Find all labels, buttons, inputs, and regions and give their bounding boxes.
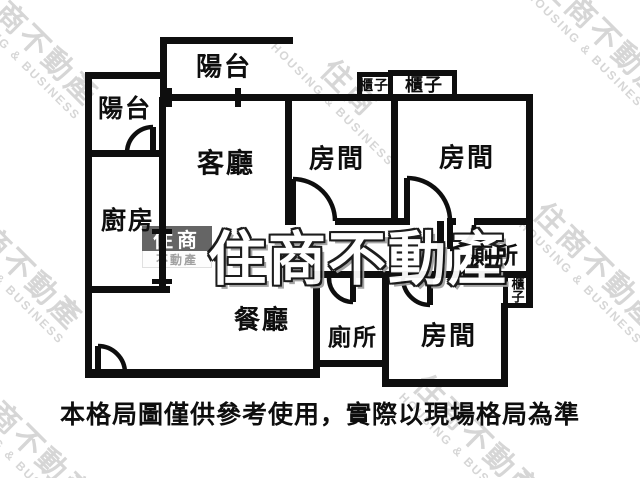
- room-label-dining: 餐廳: [234, 300, 290, 337]
- room-label-kitchen: 廚房: [101, 201, 155, 237]
- cabinet-label-1: 櫃子: [359, 75, 389, 95]
- cabinet-label-3: 櫃子: [508, 277, 527, 303]
- room-label-balcony-left: 陽台: [98, 89, 152, 125]
- room-label-bedroom1: 房間: [309, 139, 365, 176]
- room-label-toilet2: 廁所: [328, 318, 378, 352]
- room-label-toilet1: 廁所: [470, 236, 520, 270]
- floorplan-page: 住商不動產 HOUSING & BUSINESS 住商 HOUSING & BU…: [0, 0, 640, 478]
- room-label-bedroom3: 房間: [421, 316, 477, 353]
- disclaimer-text: 本格局圖僅供參考使用，實際以現場格局為準: [0, 395, 640, 431]
- room-label-living: 客廳: [197, 142, 255, 181]
- cabinet-label-2: 櫃子: [405, 71, 443, 97]
- room-label-balcony-top: 陽台: [196, 47, 252, 84]
- room-label-bedroom2: 房間: [439, 138, 495, 175]
